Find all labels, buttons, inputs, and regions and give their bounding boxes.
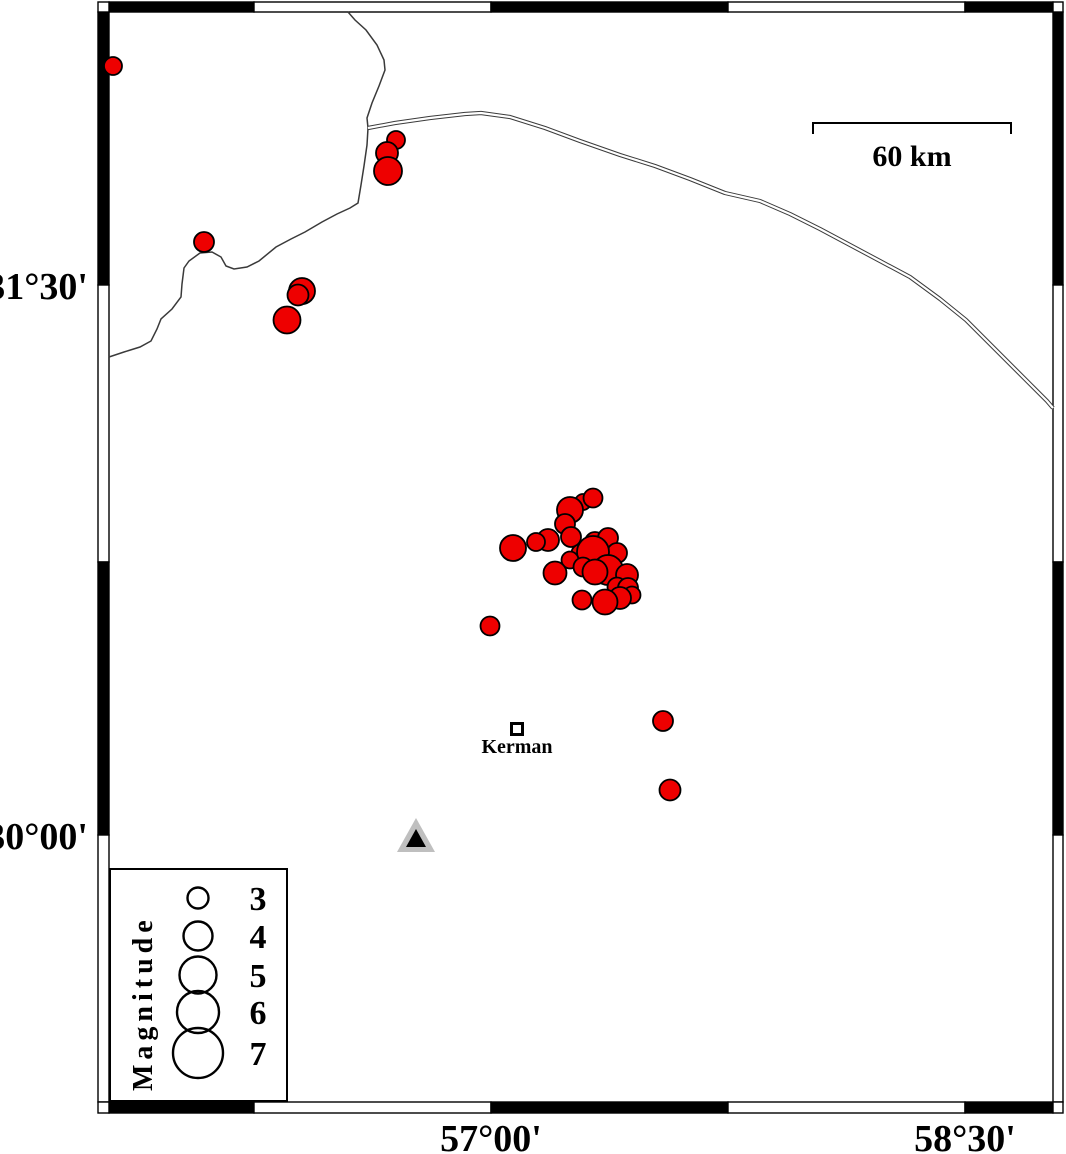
frame-segment-right [1053, 12, 1063, 285]
legend-magnitude-label: 4 [250, 919, 267, 956]
earthquake-point [544, 562, 567, 585]
earthquake-markers [104, 57, 681, 801]
frame-segment-right [1053, 562, 1063, 835]
magnitude-legend: Magnitude 34567 [110, 869, 287, 1101]
fault-lines [109, 12, 1053, 408]
frame-segment-bottom [965, 1102, 1053, 1113]
frame-segment-left [98, 12, 109, 285]
earthquake-point [194, 232, 214, 252]
earthquake-point [584, 489, 603, 508]
earthquake-point [660, 780, 681, 801]
frame-segment-top [728, 2, 965, 12]
frame-corner-cell [98, 1102, 109, 1113]
frame-segment-left [98, 835, 109, 1102]
earthquake-point [527, 533, 545, 551]
legend-magnitude-label: 3 [250, 881, 267, 918]
earthquake-point [583, 560, 608, 585]
earthquake-point [573, 591, 592, 610]
frame-segment-right [1053, 835, 1063, 1102]
legend-magnitude-label: 5 [250, 958, 267, 995]
scale-bar: 60 km [813, 123, 1011, 173]
earthquake-point [374, 157, 402, 185]
frame-segment-bottom [491, 1102, 728, 1113]
frame-segment-top [109, 2, 254, 12]
frame-segment-top [965, 2, 1053, 12]
scale-bar-bracket [813, 123, 1011, 134]
legend-magnitude-label: 6 [250, 995, 267, 1032]
frame-segment-bottom [109, 1102, 254, 1113]
earthquake-point [274, 307, 301, 334]
frame-segment-left [98, 562, 109, 835]
legend-magnitude-label: 7 [250, 1036, 267, 1073]
frame-segment-top [491, 2, 728, 12]
axis-label-lat-3130: 31°30' [0, 266, 88, 308]
earthquake-point [288, 285, 309, 306]
frame-segment-bottom [254, 1102, 491, 1113]
frame-segment-left [98, 285, 109, 562]
frame-segment-bottom [728, 1102, 965, 1113]
earthquake-point [593, 590, 618, 615]
frame-corner-cell [1053, 1102, 1063, 1113]
earthquake-point [500, 535, 526, 561]
station-triangle-icon [397, 818, 435, 852]
frame-segment-top [254, 2, 491, 12]
map-canvas: 60 km Kerman Magnitude 34567 31°30' 30°0… [0, 0, 1066, 1154]
frame-corner-cell [1053, 2, 1063, 12]
earthquake-point [104, 57, 122, 75]
legend-title: Magnitude [128, 915, 159, 1091]
frame-corner-cell [98, 2, 109, 12]
map-line-single [109, 12, 385, 357]
city-square-icon [512, 724, 523, 735]
axis-label-lat-3000: 30°00' [0, 816, 88, 858]
axis-label-lon-5700: 57°00' [440, 1118, 542, 1154]
city-label: Kerman [481, 736, 552, 758]
scale-bar-label: 60 km [872, 140, 951, 173]
axis-label-lon-5830: 58°30' [914, 1118, 1016, 1154]
frame-segment-right [1053, 285, 1063, 562]
seismicity-map-figure: 60 km Kerman Magnitude 34567 31°30' 30°0… [0, 0, 1066, 1154]
city-marker-kerman: Kerman [481, 724, 552, 759]
earthquake-point [653, 711, 673, 731]
earthquake-point [481, 617, 500, 636]
